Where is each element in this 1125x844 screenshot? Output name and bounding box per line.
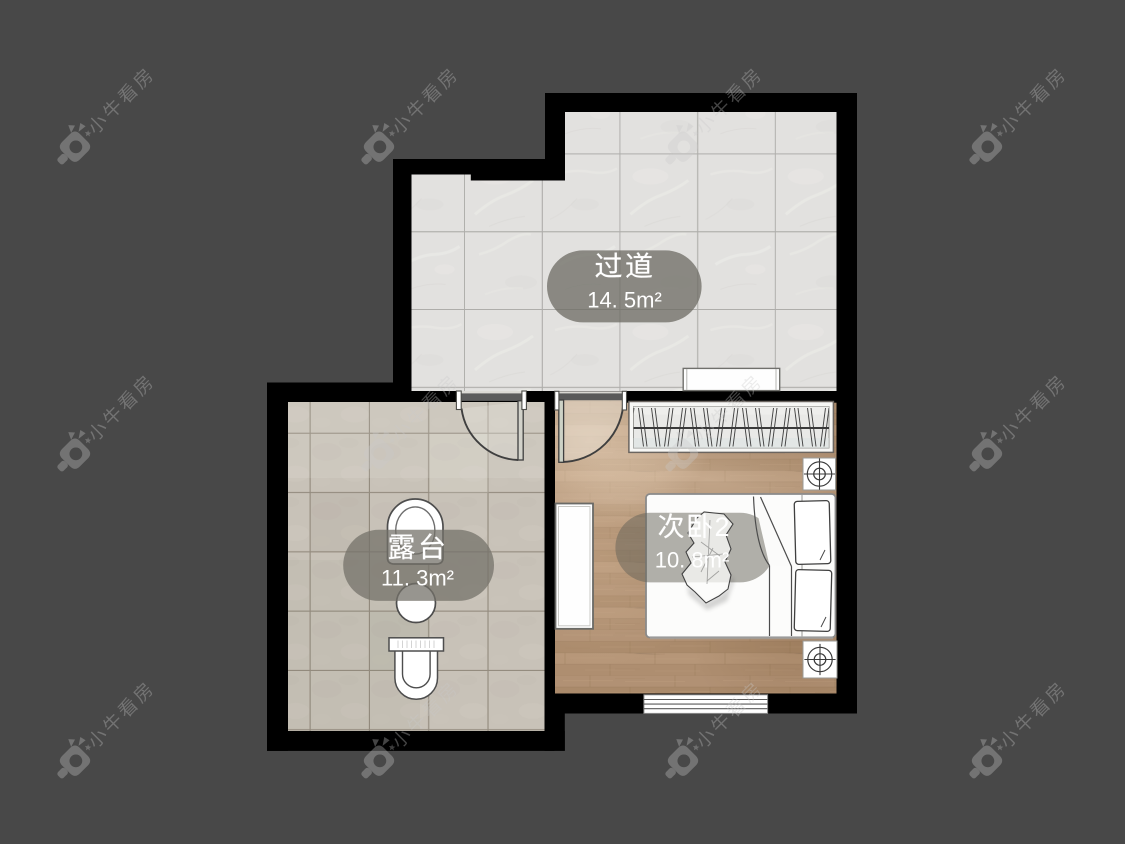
- svg-text:2: 2: [715, 512, 730, 542]
- svg-text:14. 5m²: 14. 5m²: [587, 288, 662, 313]
- svg-text:11. 3m²: 11. 3m²: [381, 566, 454, 591]
- svg-text:10. 8m²: 10. 8m²: [655, 548, 730, 573]
